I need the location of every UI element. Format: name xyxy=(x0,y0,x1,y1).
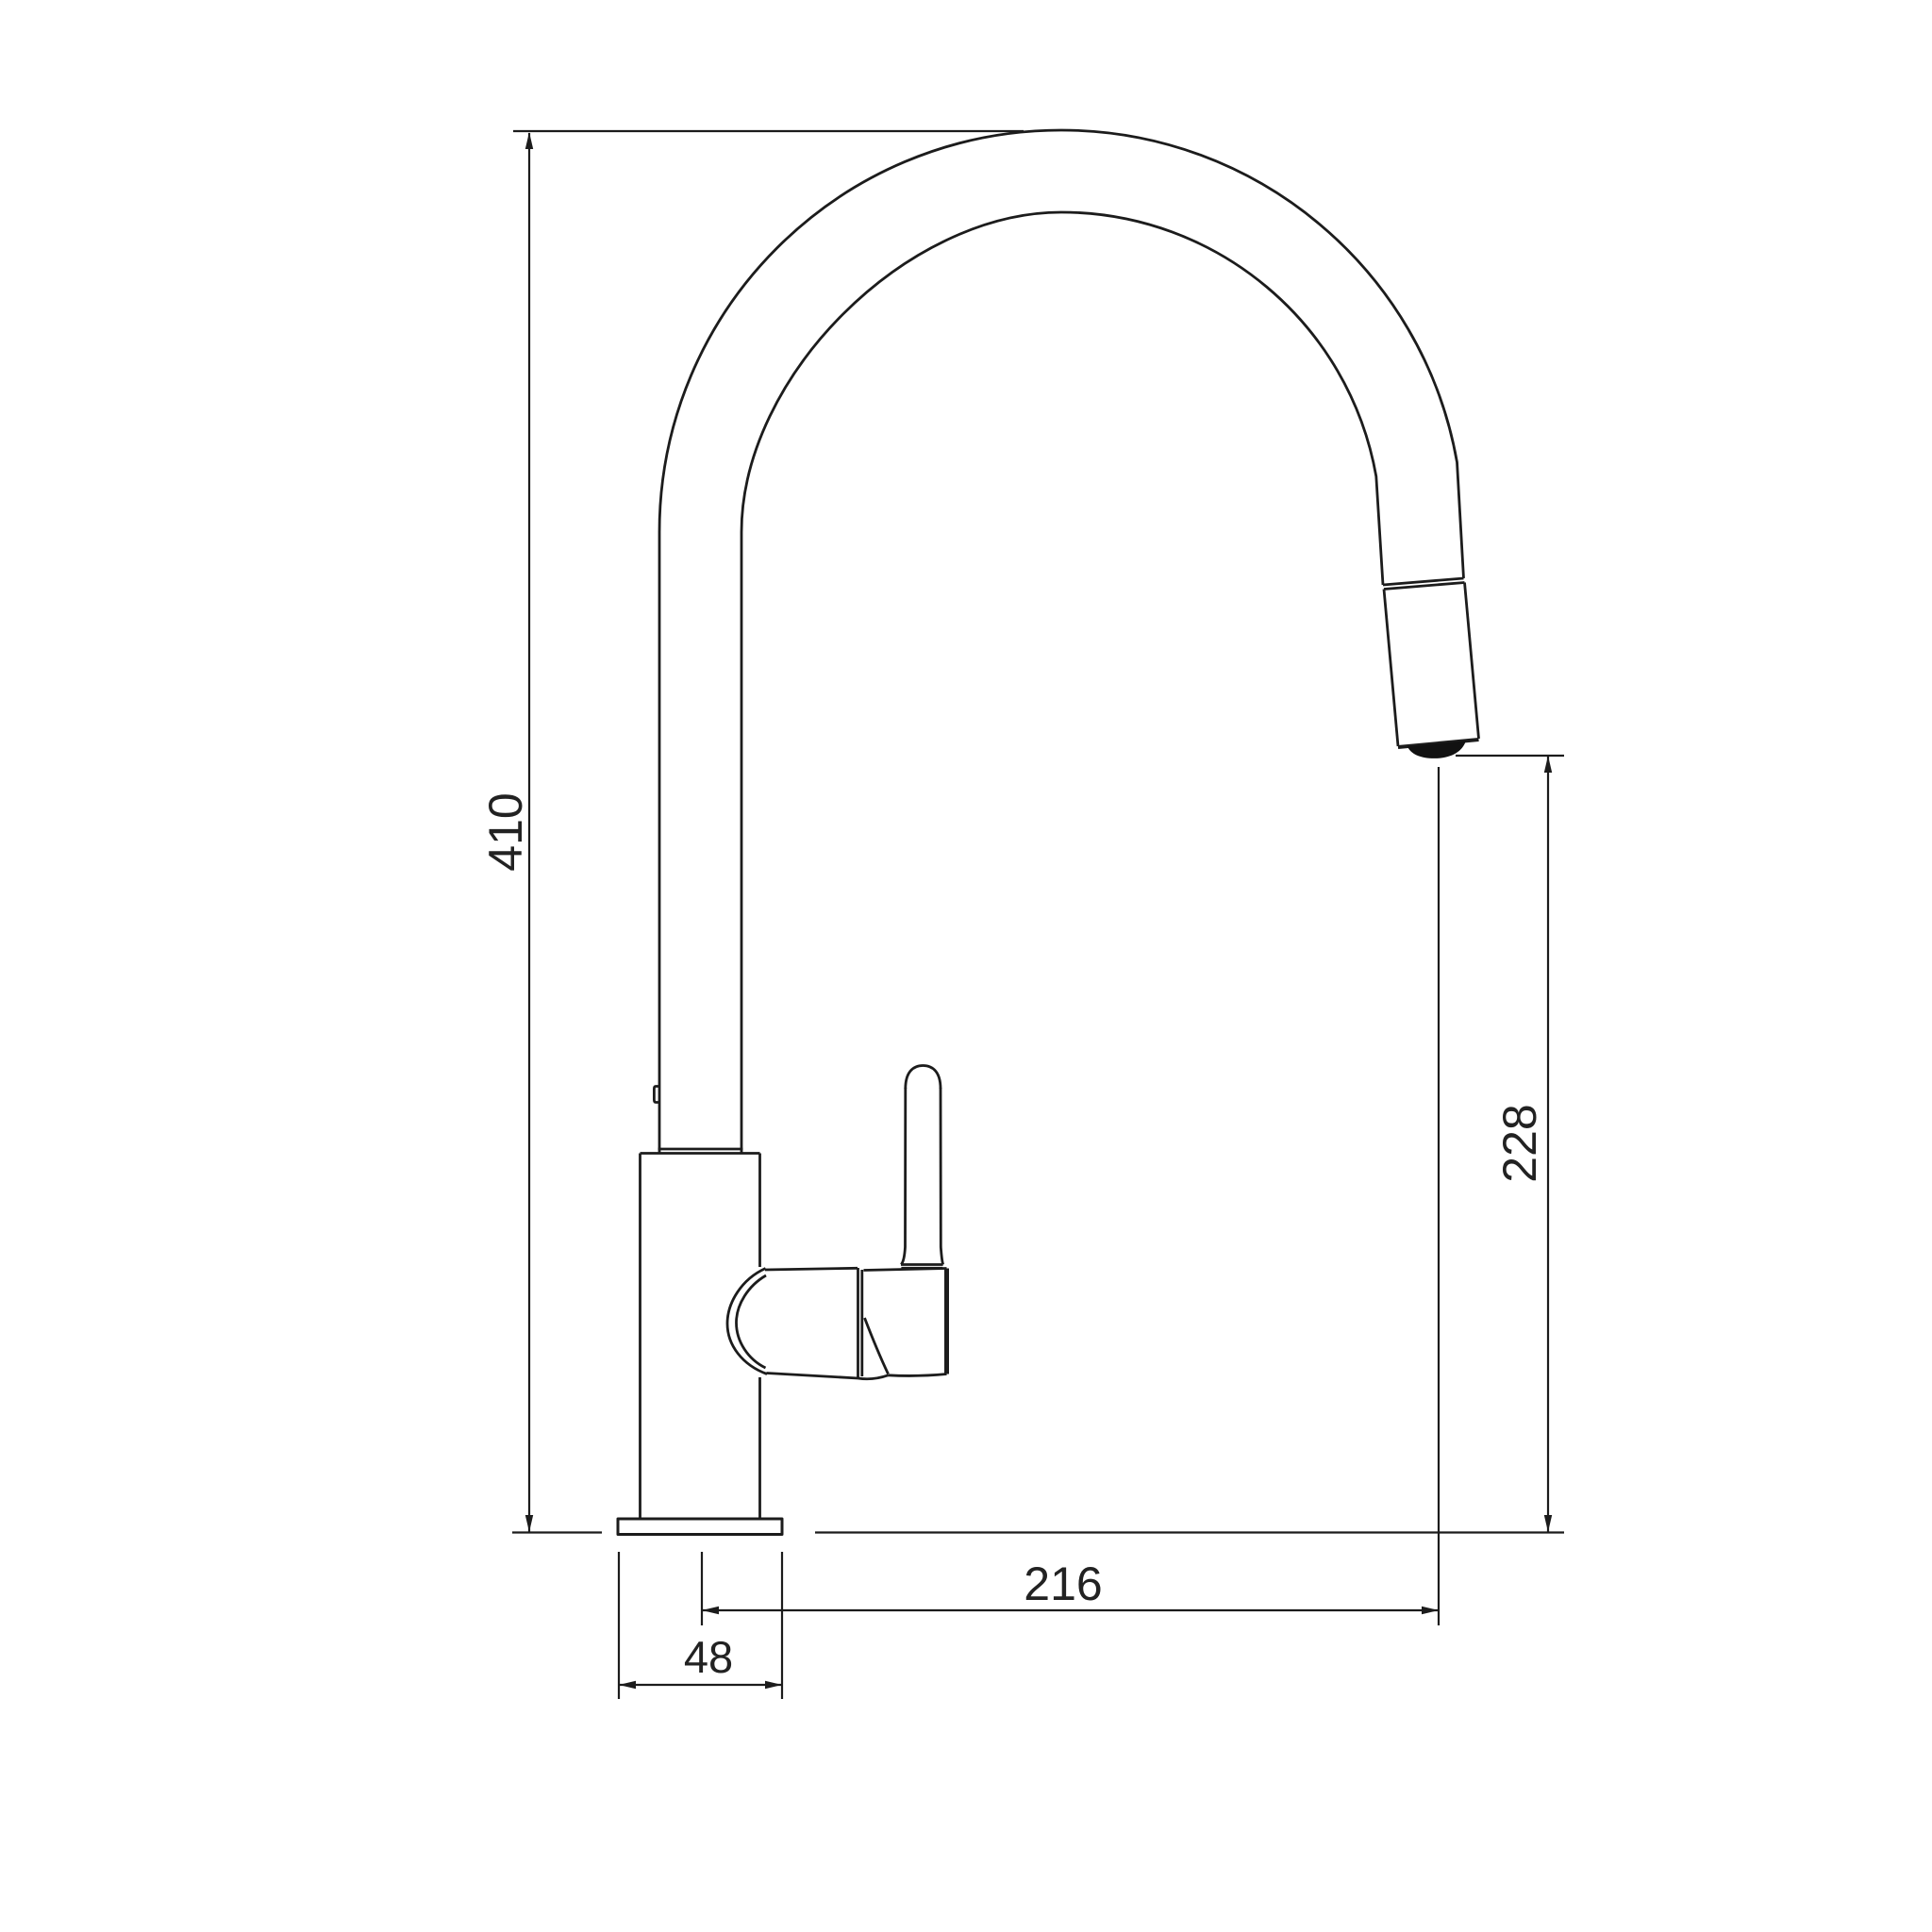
svg-text:410: 410 xyxy=(479,792,532,871)
svg-text:228: 228 xyxy=(1493,1104,1546,1182)
svg-text:216: 216 xyxy=(1024,1557,1102,1610)
svg-text:48: 48 xyxy=(684,1632,733,1682)
